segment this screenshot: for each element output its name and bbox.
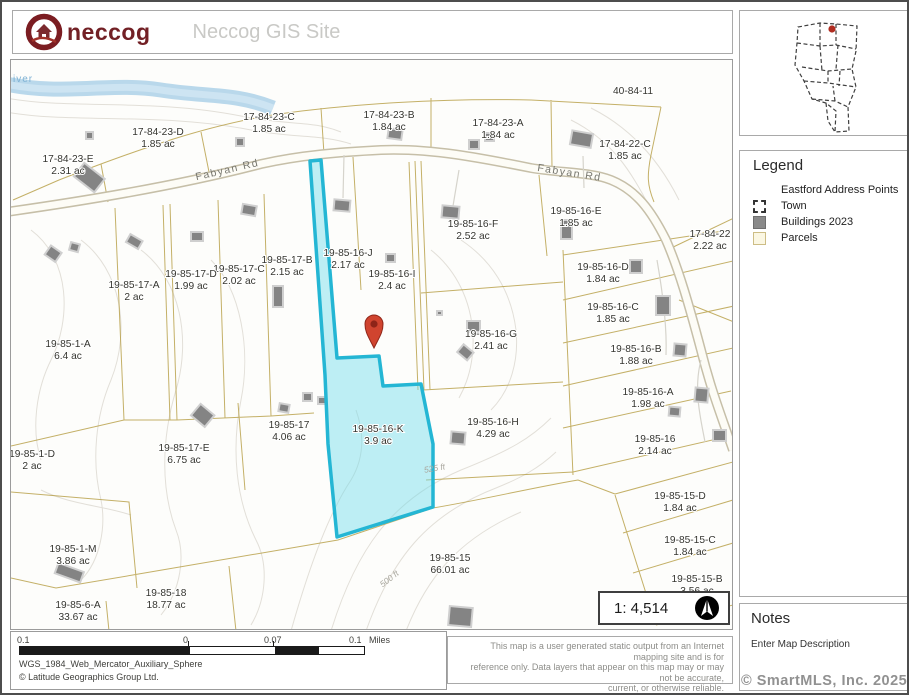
parcel-label: 19-85-6-A33.67 ac [55, 600, 101, 623]
overview-map-svg [740, 11, 907, 135]
address-points-icon [753, 184, 766, 197]
map-canvas[interactable]: iver [10, 59, 733, 630]
header-bar: neccog Neccog GIS Site [12, 10, 733, 54]
legend-panel: Legend Eastford Address Points Town Buil… [739, 150, 908, 597]
scalebar [19, 646, 365, 655]
notes-description[interactable]: Enter Map Description [751, 639, 907, 650]
town-swatch-icon [753, 200, 766, 213]
disclaimer-line: This map is a user generated static outp… [456, 641, 724, 662]
legend-item-buildings: Buildings 2023 [753, 214, 907, 230]
gis-print-page: neccog Neccog GIS Site [0, 0, 909, 695]
legend-item-town: Town [753, 198, 907, 214]
parcel-label: 19-85-162.14 ac [635, 434, 676, 457]
legend-title: Legend [753, 157, 907, 174]
neccog-logo: neccog [25, 13, 151, 51]
notes-title: Notes [751, 610, 907, 627]
overview-map [739, 10, 908, 136]
legend-item-parcels: Parcels [753, 230, 907, 246]
disclaimer-line: reference only. Data layers that appear … [456, 662, 724, 683]
scalebar-label-01: 0.1 [349, 635, 362, 645]
parcel-label: 40-84-11 [613, 86, 653, 97]
page-title: Neccog GIS Site [193, 21, 341, 44]
town-boundaries [795, 23, 857, 132]
parcel-label: 19-85-174.06 ac [269, 420, 310, 443]
projection-name: WGS_1984_Web_Mercator_Auxiliary_Sphere [19, 659, 202, 669]
scale-ratio: 1: 4,514 [614, 600, 694, 617]
parcel-label: 19-85-1-M3.86 ac [50, 544, 97, 567]
logo-text: neccog [67, 19, 151, 46]
scalebar-label-left: 0.1 [17, 635, 30, 645]
locator-dot [828, 25, 835, 32]
attribution: © Latitude Geographics Group Ltd. [19, 672, 159, 682]
neccog-seal-icon [25, 13, 63, 51]
scalebar-units: Miles [369, 635, 390, 645]
smartmls-watermark: © SmartMLS, Inc. 2025 [741, 673, 907, 689]
river-label: iver [13, 74, 33, 85]
disclaimer-line: current, or otherwise reliable. [456, 683, 724, 694]
parcel-label: 19-85-1818.77 ac [146, 588, 187, 611]
parcels-swatch-icon [753, 232, 766, 245]
buildings-swatch-icon [753, 216, 766, 229]
parcel-label: 19-85-1566.01 ac [430, 553, 471, 576]
scale-ratio-box: 1: 4,514 [598, 591, 730, 625]
legend-item-address-points: Eastford Address Points [753, 182, 907, 198]
map-svg[interactable]: iver [11, 60, 733, 630]
north-arrow-icon [694, 595, 720, 621]
disclaimer-panel: This map is a user generated static outp… [447, 636, 733, 684]
parcel-label: 17-84-222.22 ac [690, 229, 731, 252]
scalebar-panel: 0.1 0 0.07 0.1 Miles WGS_1984_Web_Mercat… [10, 631, 447, 690]
